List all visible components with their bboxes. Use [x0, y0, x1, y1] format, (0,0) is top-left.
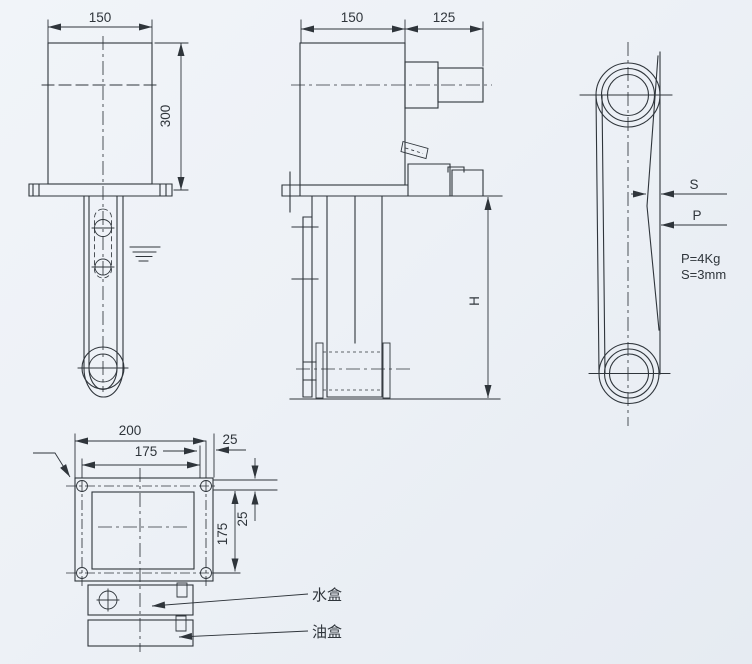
immersion-depth-dim-label: H: [467, 296, 482, 306]
belt-deflection-dim-label: S: [689, 177, 698, 192]
front-width-dim-label: 150: [89, 10, 112, 25]
front-view: 150 300: [29, 10, 188, 397]
oil-box: [88, 620, 193, 646]
housing-plan-outline: [92, 492, 194, 569]
belt-force-note: P=4Kg: [681, 251, 720, 266]
oil-box-details: [176, 616, 186, 631]
belt-view: S P P=4Kg S=3mm: [580, 42, 727, 426]
side-body-width-dim-label: 150: [341, 10, 364, 25]
roller-side-plate-right: [383, 343, 390, 398]
side-shaft-length-dim-label: 125: [433, 10, 456, 25]
mounting-hole-leader-arrow: [33, 453, 70, 477]
technical-drawing: 150 300 150 125 H: [0, 0, 752, 664]
plan-hole-pitch-y-dim-label: 175: [215, 523, 230, 546]
plan-centerlines: [98, 468, 188, 652]
motor-housing-side: [300, 43, 405, 185]
side-base-and-frame: [282, 164, 502, 399]
oil-box-leader-arrow: [179, 631, 308, 637]
water-box-leader-arrow: [152, 594, 308, 606]
front-height-dim-label: 300: [158, 105, 173, 128]
plan-edge-offset-x-dim-label: 25: [222, 432, 237, 447]
water-box-details: [97, 583, 187, 611]
plan-edge-offset-y-dim-label: 25: [235, 511, 250, 526]
plan-view: 200 175 25 25 175 水盒 油盒: [33, 423, 342, 652]
water-level-icon: [130, 247, 160, 261]
roller-side-plate-left: [316, 343, 323, 398]
plan-overall-width-dim-label: 200: [119, 423, 142, 438]
belt-deflection-note: S=3mm: [681, 267, 726, 282]
front-base-flange: [29, 184, 172, 196]
lever-hidden-line: [406, 148, 424, 154]
motor-housing-front: [48, 43, 152, 184]
side-view: 150 125 H: [282, 10, 502, 399]
belt-force-dim-label: P: [692, 208, 701, 223]
plan-extension-lines: [75, 434, 277, 573]
water-box-label: 水盒: [312, 587, 342, 604]
pulley-crosshairs: [580, 95, 672, 374]
mounting-plate: [75, 478, 213, 581]
plan-hole-pitch-x-dim-label: 175: [135, 444, 158, 459]
oil-box-label: 油盒: [312, 624, 342, 641]
roller-hidden-edges: [323, 352, 383, 390]
